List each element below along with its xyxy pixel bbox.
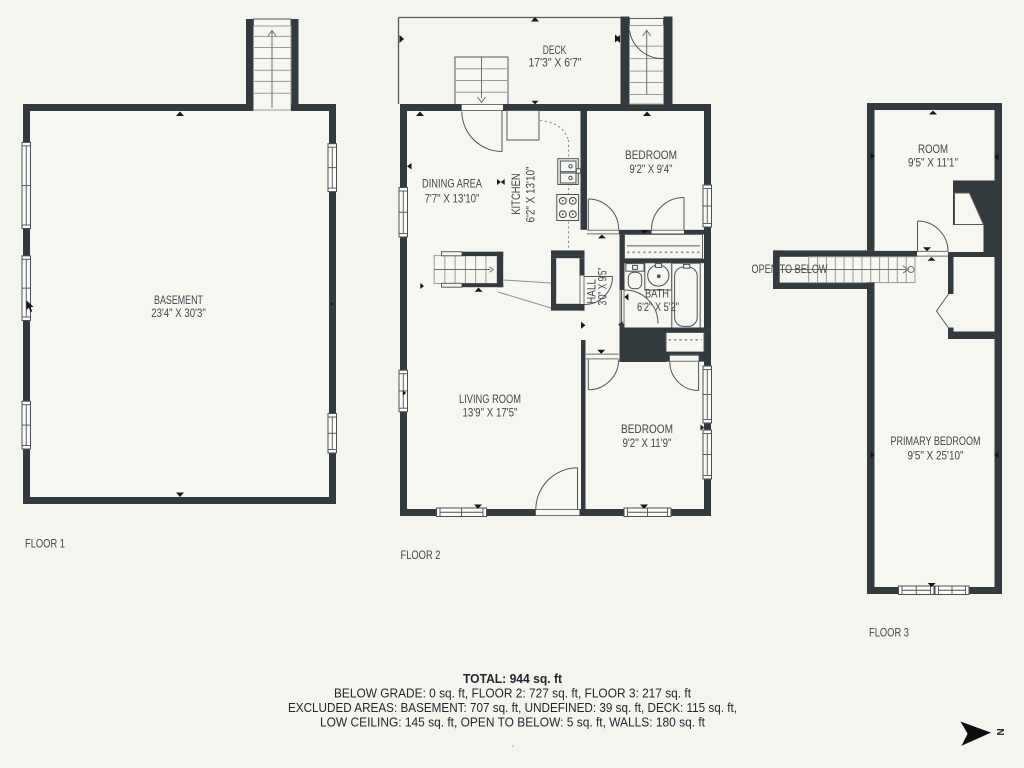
svg-text:OPEN TO BELOW: OPEN TO BELOW xyxy=(752,262,829,276)
svg-text:3'0" X 9'5": 3'0" X 9'5" xyxy=(596,268,610,306)
svg-text:KITCHEN: KITCHEN xyxy=(509,173,523,215)
svg-text:6'2" X 13'10": 6'2" X 13'10" xyxy=(524,167,538,223)
svg-text:LIVING ROOM: LIVING ROOM xyxy=(459,392,521,406)
svg-text:FLOOR 2: FLOOR 2 xyxy=(401,548,441,562)
svg-text:TOTAL: 944 sq. ft: TOTAL: 944 sq. ft xyxy=(463,671,563,686)
svg-text:9'5" X 11'1": 9'5" X 11'1" xyxy=(908,156,958,170)
svg-text:6'2" X 5'2": 6'2" X 5'2" xyxy=(637,300,679,314)
svg-text:EXCLUDED AREAS: BASEMENT: 707: EXCLUDED AREAS: BASEMENT: 707 sq. ft, UN… xyxy=(288,700,737,715)
svg-text:BELOW GRADE: 0 sq. ft, FLOOR 2: BELOW GRADE: 0 sq. ft, FLOOR 2: 727 sq. … xyxy=(334,686,691,701)
svg-text:BEDROOM: BEDROOM xyxy=(621,422,673,436)
svg-text:7'7" X 13'10": 7'7" X 13'10" xyxy=(425,192,480,206)
svg-text:ROOM: ROOM xyxy=(918,142,948,156)
svg-text:FLOOR 3: FLOOR 3 xyxy=(869,626,909,640)
svg-text:PRIMARY BEDROOM: PRIMARY BEDROOM xyxy=(891,434,981,448)
svg-text:LOW CEILING: 145 sq. ft, OPEN: LOW CEILING: 145 sq. ft, OPEN TO BELOW: … xyxy=(320,715,705,730)
svg-text:9'2" X 11'9": 9'2" X 11'9" xyxy=(623,436,672,450)
svg-text:DINING AREA: DINING AREA xyxy=(422,177,482,191)
svg-text:9'2" X 9'4": 9'2" X 9'4" xyxy=(630,162,673,176)
svg-text:BATH: BATH xyxy=(645,287,669,301)
svg-text:FLOOR 1: FLOOR 1 xyxy=(25,537,65,551)
svg-text:17'3" X 6'7": 17'3" X 6'7" xyxy=(529,55,582,69)
svg-text:23'4" X 30'3": 23'4" X 30'3" xyxy=(151,306,206,320)
svg-text:9'5" X 25'10": 9'5" X 25'10" xyxy=(908,449,964,463)
svg-text:13'9" X 17'5": 13'9" X 17'5" xyxy=(463,406,518,420)
svg-text:N: N xyxy=(994,728,1005,735)
svg-text:BEDROOM: BEDROOM xyxy=(625,148,677,162)
